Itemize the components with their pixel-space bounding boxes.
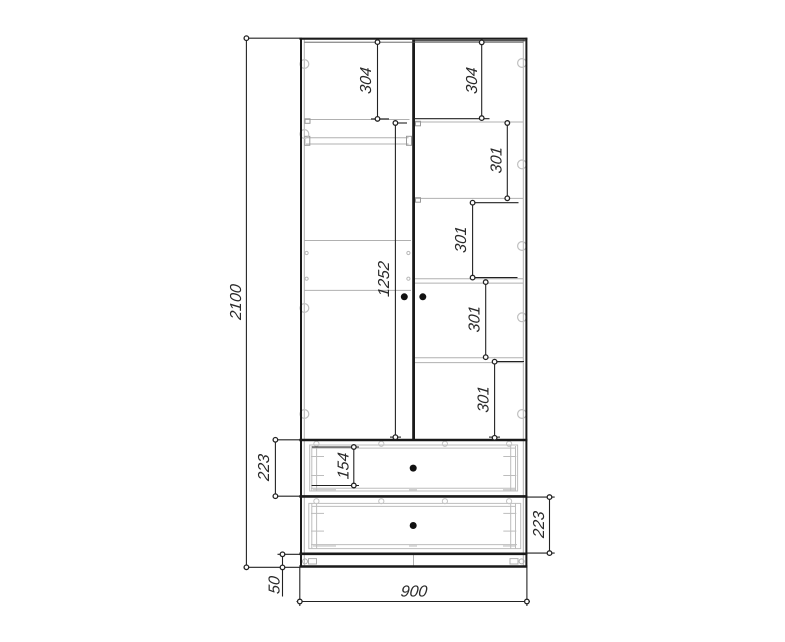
svg-text:900: 900 [400, 584, 428, 601]
svg-text:304: 304 [358, 66, 375, 94]
svg-text:304: 304 [464, 66, 481, 94]
svg-text:50: 50 [266, 575, 283, 595]
svg-text:2100: 2100 [228, 283, 245, 321]
svg-text:301: 301 [476, 385, 493, 413]
svg-text:154: 154 [336, 452, 353, 480]
svg-text:301: 301 [453, 225, 470, 253]
svg-text:301: 301 [488, 146, 505, 174]
svg-text:301: 301 [466, 305, 483, 333]
svg-text:223: 223 [531, 510, 548, 539]
svg-text:223: 223 [256, 453, 273, 482]
svg-text:1252: 1252 [376, 260, 393, 297]
